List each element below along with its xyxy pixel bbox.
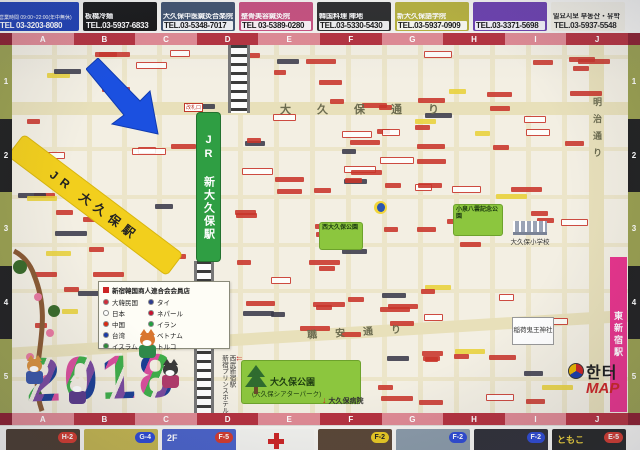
bottom-ad-5: F-2 [318,429,392,450]
seibu-shinjuku-label: 西武新宿駅 [228,355,235,413]
shop-label-mark [382,129,400,136]
shop-label-mark [306,59,336,64]
grid-row-5: 5 [628,339,640,413]
ad-phone-number: TEL.03-5937-5548 [553,21,623,30]
grid-col-I: I [505,33,567,45]
grid-ref-badge: F-5 [215,432,234,443]
shop-label-mark [460,242,481,247]
mascot-head [163,363,178,376]
legend-item-label: 大韓民国 [112,297,138,307]
prince-hotel-label: 新宿プリンスホテル [220,355,227,413]
shop-label-mark [242,168,273,175]
jr-shin-okubo-station-label: JR 新大久保駅 [201,134,217,241]
shop-label-mark [277,59,299,64]
school-building-icon [513,221,547,235]
top-ad-4: 整骨美容鍼灸院TEL 03-5389-0280 [239,2,313,31]
legend-item-label: 中国 [112,319,125,329]
down-arrows-icon: ↓↓ [235,355,245,413]
shop-label-mark [489,355,516,360]
grid-col-H: H [443,33,505,45]
top-ad-7: TEL.03-3371-5698 [473,2,547,31]
okubo-park-name: 大久保公園 [270,375,358,388]
legend-item-label: 日本 [112,308,125,318]
grid-col-E: E [258,413,320,425]
shop-label-mark [277,189,302,194]
grid-ref-badge: E-5 [604,432,623,443]
donki-penguin-icon [374,201,387,214]
bottom-ad-3: 2FF-5 [162,429,236,450]
shop-label-mark [417,144,445,149]
top-ad-6: 新大久保語学院TEL.03-5937-0909 [395,2,469,31]
shop-label-mark [424,314,443,321]
shop-label-mark [561,219,588,226]
ad-phone-number: TEL 03-3203-8080 [0,21,77,30]
shop-label-mark [493,145,509,150]
okubo-elementary-school: 大久保小学校 [504,221,556,246]
shop-label-mark [418,183,442,188]
member-store-icon [103,287,109,293]
legend-item: イスラム [103,341,138,351]
ad-title-text: 新大久保語学院 [397,13,467,21]
shop-label-mark [314,188,331,193]
bottom-ad-7: F-2 [474,429,548,450]
grid-row-1: 1 [0,45,12,119]
shop-label-mark [424,51,452,58]
flag-icon [148,321,154,327]
shop-label-mark [274,70,286,75]
map-frame: ABCDEFGHIJ ABCDEFGHIJ 12345 12345 大久保通り … [0,33,640,425]
shop-label-mark [54,69,81,74]
shop-label-mark [524,371,543,376]
grid-col-B: B [74,413,136,425]
red-cross-icon [268,433,284,449]
mascot-hanbok [139,345,156,358]
shop-label-mark [316,305,332,310]
shop-label-mark [417,159,446,164]
grid-ref-badge: F-2 [527,432,546,443]
grid-ref-badge: H-2 [58,432,77,443]
shop-label-mark [271,277,291,284]
bottom-ad-label: ともこ [557,433,584,446]
frame-corner [0,413,12,425]
grid-col-B: B [74,33,136,45]
grid-ref-badge: G-4 [135,432,155,443]
legend-item: 台湾 [103,330,138,340]
shop-label-mark [170,50,190,57]
bottom-ad-strip: H-2G-42FF-5F-2F-2F-2ともこE-5 [0,425,640,450]
label-okubo-dori: 大久保通り [280,101,465,117]
grid-ruler-bottom: ABCDEFGHIJ [12,413,628,425]
legend-item: イラン [148,319,183,329]
shop-label-mark [526,129,550,136]
shop-label-mark [56,210,73,215]
top-ad-5: 韓国料理 陣地TEL.03-5330-5430 [317,2,391,31]
ad-title-text: 板橋冷麺 [85,13,155,21]
mascot-hanbok [162,375,179,388]
bottom-ad-4 [240,429,314,450]
flag-icon [103,332,109,338]
grid-row-2: 2 [628,119,640,193]
inari-kio-shrine: 稲荷鬼王神社 [512,317,554,345]
mascot-head [70,379,85,392]
grid-col-C: C [135,413,197,425]
flag-icon [103,321,109,327]
seibu-shinjuku-pointer: 新宿プリンスホテル 西武新宿駅 ↓↓ [220,355,245,413]
grid-col-E: E [258,33,320,45]
legend-item-label: 台湾 [112,330,125,340]
shop-label-mark [570,91,602,96]
shiba-mascot [67,379,87,404]
legend-item: タイ [148,297,183,307]
mascot-head [140,333,155,346]
grid-col-A: A [12,413,74,425]
grid-ruler-top: ABCDEFGHIJ [12,33,628,45]
shop-label-mark [55,231,87,236]
shiba-mascot [160,363,180,388]
shop-label-mark [454,354,469,359]
shop-label-mark [385,183,401,188]
mascot-muzzle [143,340,152,346]
legend-item: 中国 [103,319,138,329]
shop-label-mark [526,399,545,404]
shop-label-mark [452,186,481,193]
hospital-name: 大久保病院 [328,398,363,405]
okubo-hospital-label: ↓ 大久保病院 [322,395,363,406]
shop-label-mark [531,211,548,216]
shop-label-mark [388,304,418,309]
school-label: 大久保小学校 [504,236,556,246]
shop-label-mark [422,351,443,356]
mascot-muzzle [73,386,82,392]
ad-phone-number: TEL 03-5389-0280 [241,21,311,30]
grid-row-4: 4 [628,266,640,340]
label-meiji-dori: 明治通り [591,97,604,165]
bottom-ad-8: ともこE-5 [552,429,626,450]
frame-corner [628,33,640,45]
top-ad-1: 営業時間 09:00~22:00(年中無休)TEL 03-3203-8080 [0,2,79,31]
bottom-ad-6: F-2 [396,429,470,450]
shop-label-mark [351,170,382,175]
shop-label-mark [425,357,438,362]
grid-ruler-left: 12345 [0,45,12,413]
grid-row-5: 5 [0,339,12,413]
shop-label-mark [417,227,436,232]
top-ad-strip: 営業時間 09:00~22:00(年中無休)TEL 03-3203-8080板橋… [0,0,640,33]
legend-item-label: イスラム [112,341,138,351]
legend-item: ネパール [148,308,183,318]
shop-label-mark [275,177,304,182]
grid-col-G: G [382,413,444,425]
shop-label-mark [569,57,595,62]
shop-label-mark [573,66,589,71]
shop-label-mark [342,131,372,138]
shop-label-mark [419,400,443,405]
shop-label-mark [319,80,342,85]
flag-icon [103,299,109,305]
shop-label-mark [350,140,380,145]
shop-label-mark [155,204,173,209]
shop-label-mark [27,119,40,124]
ad-title-text: 韓国料理 陣地 [319,13,389,21]
shop-label-mark [171,144,196,149]
mascot-hanbok [26,371,43,384]
shiba-mascot [137,333,157,358]
legend-item: 日本 [103,308,138,318]
legend-item-label: イラン [157,319,177,329]
grid-row-1: 1 [628,45,640,119]
ad-title-text: 일요시보 부동산・유학 [553,13,623,21]
ad-phone-number: TEL.03-5937-0909 [397,21,467,30]
grid-col-F: F [320,33,382,45]
grid-row-4: 4 [0,266,12,340]
bottom-ad-2: G-4 [84,429,158,450]
koizumi-yakumo-park: 小泉八雲記念公園 [454,205,502,235]
shiba-mascot [24,359,44,384]
shop-label-mark [381,396,413,401]
shop-label-mark [511,187,542,192]
map-canvas: 大久保通り 職安通り 明治通り JR 大久保駅 JR 新大久保駅 改札口 東新宿… [12,45,628,413]
shop-label-mark [89,247,104,252]
shop-label-mark [342,249,367,254]
legend-title: 新宿韓国商人連合会会員店 [112,285,190,295]
frame-corner [0,33,12,45]
shop-label-mark [243,311,274,316]
shop-label-mark [382,293,406,298]
shop-label-mark [487,92,512,97]
grid-col-F: F [320,413,382,425]
shop-label-mark [421,289,435,294]
grid-ruler-right: 12345 [628,45,640,413]
grid-row-3: 3 [628,192,640,266]
shop-label-mark [387,356,409,361]
shop-label-mark [342,149,356,154]
mascot-head [27,359,42,372]
grid-col-J: J [566,413,628,425]
ad-phone-number: TEL.03-5348-7017 [163,21,233,30]
top-ad-2: 板橋冷麺TEL.03-5937-6833 [83,2,157,31]
taegeuk-icon [568,363,584,379]
grid-col-A: A [12,33,74,45]
ad-phone-number: TEL.03-5937-6833 [85,21,155,30]
top-ad-8: 일요시보 부동산・유학TEL.03-5937-5548 [551,2,625,31]
frame-corner [628,413,640,425]
shop-label-mark [237,260,251,265]
grid-col-C: C [135,33,197,45]
bottom-ad-label: 2F [167,433,178,443]
ad-phone-number: TEL.03-5330-5430 [319,21,389,30]
logo-map-text: MAP [586,380,628,397]
shop-label-mark [132,148,166,155]
shop-label-mark [565,141,584,146]
legend-column-left: 大韓民国日本中国台湾イスラム [103,297,138,351]
shop-label-mark [348,297,364,302]
flag-icon [103,310,109,316]
legend-item-label: ネパール [157,308,183,318]
ad-title-text: 大久保中医鍼灸合楽院 [163,13,233,21]
top-ad-3: 大久保中医鍼灸合楽院TEL.03-5348-7017 [161,2,235,31]
shop-label-mark [533,60,553,65]
higashi-shinjuku-station-label: 東新宿駅 [612,311,625,359]
grid-row-3: 3 [0,192,12,266]
flag-icon [148,299,154,305]
shop-label-mark [486,394,514,401]
tree-icon [245,365,267,395]
grid-col-H: H [443,413,505,425]
shop-label-mark [380,157,414,164]
grid-row-2: 2 [0,119,12,193]
mascot-muzzle [30,366,39,372]
legend-item: 大韓民国 [103,297,138,307]
shop-label-mark [475,131,490,136]
ad-title-text: 整骨美容鍼灸院 [241,13,311,21]
jr-shin-okubo-station-band: JR 新大久保駅 [197,113,220,261]
mascot-hanbok [69,391,86,404]
mascot-muzzle [166,370,175,376]
shop-label-mark [309,260,340,265]
jr-railway-track [228,45,250,113]
shop-label-mark [378,385,393,390]
hanteo-map-logo: 한터 MAP [568,359,628,397]
shop-label-mark [449,89,466,94]
shop-label-mark [490,106,510,111]
shop-label-mark [95,52,117,57]
legend-item-label: トルコ [157,341,176,351]
grid-ref-badge: F-2 [371,432,390,443]
flag-icon [103,343,109,349]
blue-arrow-annotation [86,58,164,140]
grid-col-D: D [197,33,259,45]
shop-label-mark [345,178,362,183]
bottom-ad-1: H-2 [6,429,80,450]
legend-item-label: タイ [157,297,170,307]
shop-label-mark [319,266,335,271]
legend-item-label: ベトナム [157,330,183,340]
down-arrow-icon: ↓ [322,395,327,405]
ad-phone-number: TEL.03-3371-5698 [475,21,545,30]
grid-col-D: D [197,413,259,425]
shop-label-mark [27,196,57,201]
flag-icon [148,310,154,316]
shop-label-mark [247,138,261,143]
ticket-gate-label: 改札口 [184,103,203,112]
shop-label-mark [499,294,514,301]
shop-label-mark [524,116,546,123]
shop-label-mark [384,227,398,232]
grid-col-G: G [382,33,444,45]
grid-col-I: I [505,413,567,425]
map-legend: 新宿韓国商人連合会会員店 大韓民国日本中国台湾イスラム タイネパールイランベトナ… [98,281,230,349]
shop-label-mark [246,301,275,306]
nishi-okubo-park: 西大久保公園 [320,223,362,249]
grid-ref-badge: F-2 [449,432,468,443]
grid-col-J: J [566,33,628,45]
shop-label-mark [415,119,436,124]
shop-label-mark [415,125,430,130]
shop-label-mark [93,272,124,277]
shop-label-mark [235,210,256,215]
shop-label-mark [496,194,527,199]
